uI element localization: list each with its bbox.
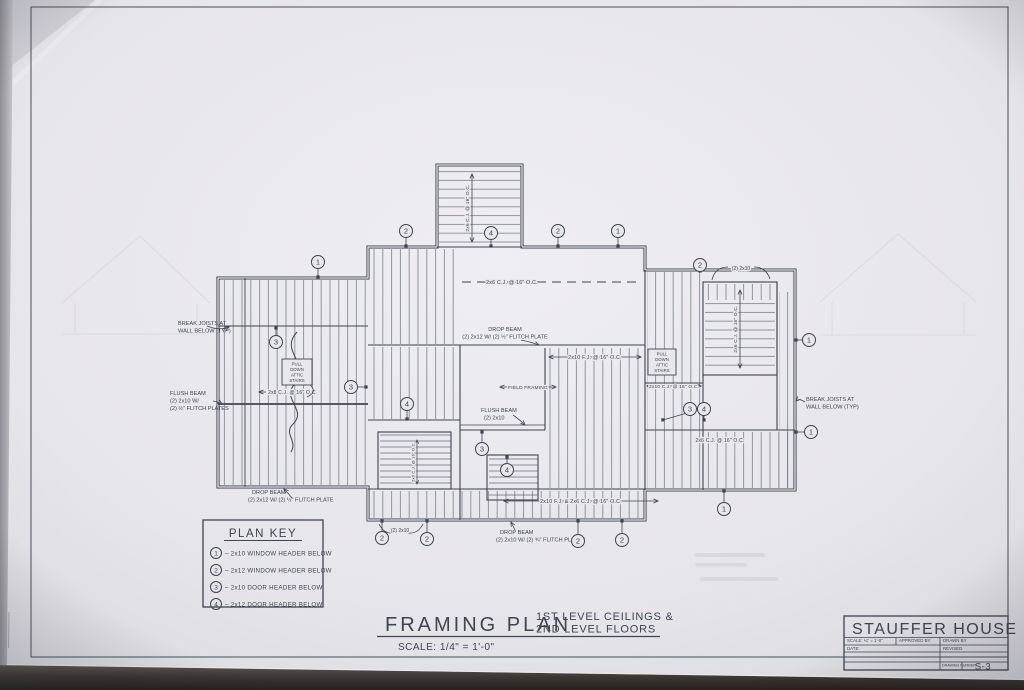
svg-text:– 2x12 WINDOW HEADER BELOW: – 2x12 WINDOW HEADER BELOW	[225, 567, 332, 574]
svg-text:1: 1	[809, 428, 813, 437]
field-framing-label: FIELD FRAMING	[508, 385, 548, 391]
dim-bottom-combo: 2x10 F.J. & 2x6 C.J. @ 16" O.C.	[540, 499, 622, 505]
svg-text:BREAK JOISTS AT: BREAK JOISTS AT	[806, 397, 855, 403]
svg-text:3: 3	[480, 445, 484, 454]
callout-balloon-3: 3	[684, 403, 697, 416]
svg-text:– 2x10 WINDOW HEADER BELOW: – 2x10 WINDOW HEADER BELOW	[225, 550, 332, 557]
svg-text:(2) 2x12 W/ (2) ½" FLITCH PLAT: (2) 2x12 W/ (2) ½" FLITCH PLATE	[248, 497, 334, 504]
project-name: STAUFFER HOUSE	[852, 621, 1018, 638]
stairs-treads-small	[489, 457, 538, 498]
svg-text:ATTIC: ATTIC	[656, 363, 668, 368]
svg-text:1: 1	[616, 227, 620, 236]
svg-text:STAIRS: STAIRS	[654, 368, 669, 373]
dim-dashed-cj: 2x6 C.J. @ 16" O.C.	[486, 280, 538, 286]
svg-text:(2) 2x10: (2) 2x10	[732, 266, 751, 272]
svg-text:WALL BELOW (TYP): WALL BELOW (TYP)	[178, 329, 231, 335]
svg-text:(2) ½" FLITCH PLATES: (2) ½" FLITCH PLATES	[170, 405, 229, 412]
svg-text:3: 3	[214, 585, 218, 592]
svg-text:4: 4	[505, 466, 509, 475]
svg-text:2: 2	[698, 261, 702, 270]
dim-right-room-joists: 2x6 C.J. @ 16" O.C.	[733, 305, 739, 352]
svg-text:3: 3	[688, 405, 692, 414]
svg-text:4: 4	[489, 229, 493, 238]
svg-text:DROP BEAM: DROP BEAM	[488, 327, 522, 333]
svg-text:2: 2	[576, 537, 580, 546]
svg-text:DOWN: DOWN	[655, 357, 669, 362]
svg-text:4: 4	[214, 602, 218, 609]
svg-text:1: 1	[807, 336, 811, 345]
drawing-subtitle-1: 1ST LEVEL CEILINGS &	[536, 611, 674, 623]
svg-text:2: 2	[380, 534, 384, 543]
scale-label: SCALE: ¼" = 1'-0"	[847, 638, 883, 643]
drawing-scale: SCALE: 1/4" = 1'-0"	[398, 642, 495, 653]
drawing-subtitle-2: 2ND LEVEL FLOORS	[536, 624, 656, 636]
approved-by-label: APPROVED BY:	[899, 638, 931, 643]
note-break-joists-right: BREAK JOISTS AT WALL BELOW (TYP)	[796, 397, 859, 411]
svg-text:2: 2	[620, 536, 624, 545]
svg-text:– 2x12 DOOR HEADER BELOW: – 2x12 DOOR HEADER BELOW	[225, 601, 323, 608]
svg-text:3: 3	[274, 338, 278, 347]
date-label: DATE:	[847, 646, 860, 651]
dim-left-cj: 2x8 C.J. @ 16" O.C.	[268, 390, 317, 396]
svg-text:1: 1	[214, 551, 218, 558]
svg-text:2: 2	[556, 227, 560, 236]
dim-stairs-joists: 2x6 C.J. @ 16" O.C.	[411, 442, 416, 482]
svg-text:2: 2	[214, 568, 218, 575]
note-break-joists-left: BREAK JOISTS AT WALL BELOW (TYP)	[178, 321, 231, 335]
svg-text:2: 2	[404, 227, 408, 236]
pull-down-attic-stairs-right: PULL DOWN ATTIC STAIRS	[648, 349, 676, 375]
svg-text:DOWN: DOWN	[290, 367, 304, 372]
svg-text:1: 1	[316, 258, 320, 267]
svg-text:– 2x10 DOOR HEADER BELOW: – 2x10 DOOR HEADER BELOW	[225, 584, 323, 591]
drawn-by-label: DRAWN BY	[943, 638, 967, 643]
svg-text:BREAK JOISTS AT: BREAK JOISTS AT	[178, 321, 227, 327]
framing-plan-drawing: 2x6 C.J. @ 16" O.C. 2x6 C.J. @ 16" O.C. …	[0, 0, 1024, 690]
svg-text:4: 4	[405, 400, 409, 409]
svg-text:1: 1	[722, 505, 726, 514]
svg-text:DROP BEAM: DROP BEAM	[500, 530, 534, 536]
svg-text:STAIRS: STAIRS	[289, 378, 304, 383]
svg-text:4: 4	[702, 405, 706, 414]
stairs-treads	[380, 434, 451, 487]
svg-text:WALL BELOW (TYP): WALL BELOW (TYP)	[806, 405, 859, 411]
svg-text:(2) 2x10 W/: (2) 2x10 W/	[170, 399, 199, 405]
drawing-number-label: DRAWING NUMBER	[942, 664, 976, 668]
svg-text:2: 2	[425, 535, 429, 544]
svg-text:FLUSH BEAM: FLUSH BEAM	[481, 408, 517, 414]
svg-text:(2) 2x10: (2) 2x10	[391, 528, 410, 534]
svg-text:PULL: PULL	[657, 352, 668, 357]
photographed-blueprint-sheet: 2x6 C.J. @ 16" O.C. 2x6 C.J. @ 16" O.C. …	[0, 0, 1024, 690]
dim-floor-joists: 2x10 F.J. @ 16" O.C.	[568, 355, 622, 361]
drawing-number: S-3	[975, 662, 991, 673]
svg-text:(2) 2x12 W/ (2) ½" FLITCH PLAT: (2) 2x12 W/ (2) ½" FLITCH PLATE	[462, 334, 548, 341]
revised-label: REVISED	[943, 646, 962, 651]
dim-right-cj: 2x10 C.J. @ 16" O.C.	[649, 384, 699, 390]
svg-text:(2) 2x10: (2) 2x10	[484, 416, 505, 422]
svg-text:FLUSH BEAM: FLUSH BEAM	[170, 391, 206, 397]
svg-text:DROP BEAM: DROP BEAM	[252, 490, 286, 496]
plan-key-title: PLAN KEY	[229, 528, 297, 540]
leader-tick	[661, 418, 664, 421]
dim-right-lower-cj: 2x6 C.J. @ 16" O.C.	[696, 438, 745, 444]
svg-text:3: 3	[349, 383, 353, 392]
dim-chimney-joists: 2x6 C.J. @ 16" O.C.	[465, 184, 471, 231]
svg-text:PULL: PULL	[292, 362, 303, 367]
svg-text:ATTIC: ATTIC	[291, 373, 303, 378]
